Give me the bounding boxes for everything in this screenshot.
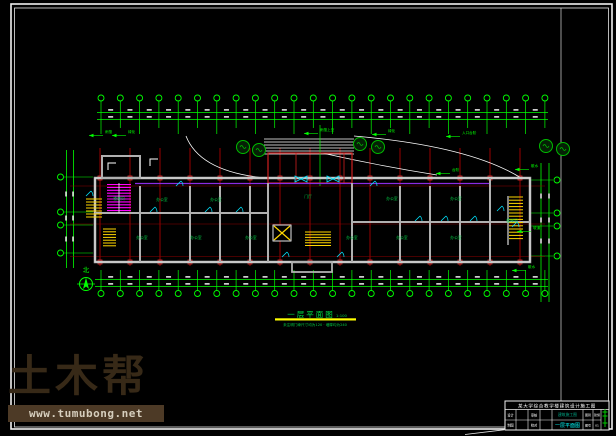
annotation-label: 散水 [528, 264, 536, 269]
grid-bubble [349, 95, 355, 101]
grid-bubble [233, 95, 239, 101]
door-swing [420, 216, 422, 221]
dim-text [378, 283, 383, 284]
dim-text [147, 116, 152, 117]
dim-text [263, 283, 268, 284]
grid-bubble [175, 95, 181, 101]
dim-text [72, 192, 73, 197]
grid-bubble [503, 95, 509, 101]
door-leaf [470, 216, 475, 221]
dim-text [359, 109, 364, 110]
door-leaf [86, 191, 91, 196]
room-label: 办公室 [346, 235, 358, 240]
room-label: 楼梯间 [506, 218, 518, 223]
dim-text [127, 283, 132, 284]
grid-bubble [554, 223, 560, 229]
grid-bubble [349, 291, 355, 297]
grid-bubble [233, 291, 239, 297]
door-swing [155, 207, 157, 212]
dim-text [224, 276, 229, 277]
dim-text [548, 218, 549, 223]
dim-text [301, 116, 306, 117]
grid-bubble [214, 95, 220, 101]
doors [86, 176, 519, 257]
drawing-note: 未注明门垛尺寸均为120 · 墙厚均为240 [283, 322, 348, 327]
watermark-url: www.tumubong.net [8, 405, 164, 422]
dim-text [108, 109, 113, 110]
north-arrow: 北 [77, 266, 95, 291]
dim-text [398, 109, 403, 110]
dim-text [263, 109, 268, 110]
door-leaf [415, 216, 420, 221]
door-swing [446, 216, 448, 221]
dim-text [65, 192, 66, 197]
dim-text [340, 283, 345, 284]
dim-text [147, 283, 152, 284]
titleblock-cell-draw: 制图 [507, 423, 513, 428]
dim-text [494, 283, 499, 284]
dim-text [127, 276, 132, 277]
dim-text [540, 194, 541, 199]
titleblock-no-value: 01 [595, 423, 599, 427]
room-label: 门厅 [304, 194, 312, 199]
dim-text [65, 216, 66, 221]
grid-bubble [523, 95, 529, 101]
dim-text [340, 109, 345, 110]
grid-bubble [175, 291, 181, 297]
dim-text [185, 276, 190, 277]
dim-text [533, 109, 538, 110]
north-label: 北 [83, 266, 90, 274]
dim-text [378, 116, 383, 117]
grid-bubble [330, 291, 336, 297]
dim-text [282, 116, 287, 117]
titleblock-cell-check: 审核 [531, 413, 538, 418]
title-block: 某大学综合教学楼建筑设计施工图 设计 审核 制图 校对 建筑施工图 一层平面图 … [505, 401, 609, 430]
door-leaf [205, 207, 210, 212]
grid-bubble [117, 291, 123, 297]
grid-bubble [426, 95, 432, 101]
dim-text [494, 276, 499, 277]
grid-bubble [272, 291, 278, 297]
grid-bubble [523, 291, 529, 297]
grid-bubble [291, 291, 297, 297]
grid-bubble [291, 95, 297, 101]
dim-text [378, 276, 383, 277]
grid-bubble [272, 95, 278, 101]
door-swing [502, 206, 504, 211]
grid-bubble [426, 291, 432, 297]
dim-text [320, 283, 325, 284]
annotation-arrow [89, 134, 94, 137]
title-underline [275, 318, 356, 320]
grid-bubble [484, 95, 490, 101]
annotation-label: 绿化 [128, 129, 136, 134]
annotation-arrow [112, 134, 117, 137]
grid-bubble [388, 291, 394, 297]
section-mark [108, 163, 116, 170]
dim-text [108, 116, 113, 117]
door-swing [475, 216, 477, 221]
dim-text [282, 109, 287, 110]
dim-text [475, 276, 480, 277]
room-label: 办公室 [190, 235, 202, 240]
dim-text [166, 109, 171, 110]
dim-text [456, 109, 461, 110]
annotation-label: 入口台阶 [462, 130, 477, 135]
left-dimension-chain [58, 150, 94, 268]
section-mark [150, 159, 158, 166]
dim-text [185, 116, 190, 117]
grid-bubble [368, 291, 374, 297]
dim-text [205, 276, 210, 277]
dim-text [436, 276, 441, 277]
dim-text [378, 109, 383, 110]
grid-bubble [195, 291, 201, 297]
titleblock-drawing-name: 一层平面图 [555, 423, 580, 429]
room-label: 办公室 [156, 197, 168, 202]
dim-text [359, 283, 364, 284]
grid-bubble [445, 95, 451, 101]
dim-text [263, 116, 268, 117]
dim-text [108, 283, 113, 284]
grid-bubble [98, 95, 104, 101]
dim-text [548, 194, 549, 199]
titleblock-cell-design: 设计 [507, 413, 514, 418]
dim-text [320, 276, 325, 277]
drawing-scale-text: 1:100 [336, 313, 348, 318]
dim-text [127, 116, 132, 117]
door-swing [241, 207, 243, 212]
dim-text [456, 276, 461, 277]
dim-text [65, 237, 66, 242]
dim-text [185, 109, 190, 110]
dim-text [540, 239, 541, 244]
dim-text [533, 116, 538, 117]
room-label: 办公室 [136, 235, 148, 240]
annotation-label: 雨篷上空 [320, 127, 335, 132]
room-label: 办公室 [210, 197, 222, 202]
dim-text [224, 283, 229, 284]
titleblock-project: 建筑施工图 [558, 412, 577, 417]
grid-bubble [98, 291, 104, 297]
dim-text [301, 109, 306, 110]
dim-text [533, 276, 538, 277]
grid-bubble [195, 95, 201, 101]
annotation-label: 坡道 [533, 225, 541, 230]
dim-text [456, 116, 461, 117]
grid-bubble [484, 291, 490, 297]
annotation-label: 台阶 [452, 167, 460, 172]
annotation-label: 雨篷 [105, 129, 113, 134]
door-leaf [150, 207, 155, 212]
grid-bubble [407, 95, 413, 101]
dim-text [320, 116, 325, 117]
grid-bubble [252, 95, 258, 101]
door-swing [210, 207, 212, 212]
dim-text [243, 283, 248, 284]
dim-text [147, 276, 152, 277]
grid-bubble [554, 210, 560, 216]
room-label: 办公室 [245, 235, 257, 240]
grid-bubble [368, 95, 374, 101]
grid-bubble [407, 291, 413, 297]
drawing-title-text: 一层平面图 [287, 310, 335, 319]
bottom-dimension-chain [95, 270, 548, 297]
dim-text [72, 237, 73, 242]
titleblock-header: 某大学综合教学楼建筑设计施工图 [518, 403, 596, 410]
grid-bubble [310, 291, 316, 297]
dim-text [166, 283, 171, 284]
titleblock-no-label: 图号 [585, 422, 591, 427]
drawing-title: 一层平面图 1:100 未注明门垛尺寸均为120 · 墙厚均为240 [275, 310, 356, 327]
door-swing [91, 191, 93, 196]
grid-bubble [252, 291, 258, 297]
titleblock-cell-proof: 校对 [531, 423, 538, 428]
annotation-arrow [372, 133, 377, 136]
dim-text [282, 276, 287, 277]
grid-bubble [117, 95, 123, 101]
dim-text [205, 109, 210, 110]
grid-bubble [554, 253, 560, 259]
dim-text [513, 283, 518, 284]
dim-text [72, 216, 73, 221]
dim-text [263, 276, 268, 277]
grid-bubble [214, 291, 220, 297]
grid-bubble [137, 291, 143, 297]
annotation-label: 散水 [531, 163, 539, 168]
grid-bubble [58, 250, 64, 256]
door-leaf [236, 207, 241, 212]
annotation-label: 绿化 [388, 128, 396, 133]
dim-text [513, 109, 518, 110]
dim-text [513, 116, 518, 117]
grid-bubble [58, 174, 64, 180]
dim-text [494, 116, 499, 117]
dim-text [417, 283, 422, 284]
dim-text [456, 283, 461, 284]
dim-text [243, 116, 248, 117]
dim-text [417, 276, 422, 277]
dim-text [475, 109, 480, 110]
dim-text [224, 116, 229, 117]
room-label: 办公室 [386, 196, 398, 201]
grid-bubble [503, 291, 509, 297]
watermark-logo: 土木帮 [8, 354, 149, 401]
grid-bubble [310, 95, 316, 101]
dim-text [417, 116, 422, 117]
titleblock-type-value: 建施 [594, 412, 600, 417]
grid-bubble [542, 95, 548, 101]
dim-text [548, 239, 549, 244]
dim-text [436, 283, 441, 284]
dim-text [282, 283, 287, 284]
grid-bubble [465, 95, 471, 101]
room-labels: 楼梯间办公室办公室门厅办公室办公室办公室办公室办公室办公室办公室办公室楼梯间 [113, 194, 518, 240]
dim-text [417, 109, 422, 110]
dim-text [359, 276, 364, 277]
dim-text [475, 283, 480, 284]
dim-text [340, 276, 345, 277]
dim-text [436, 116, 441, 117]
room-label: 办公室 [450, 235, 462, 240]
dim-text [166, 116, 171, 117]
dim-text [540, 218, 541, 223]
dim-text [340, 116, 345, 117]
dim-text [127, 109, 132, 110]
dim-text [301, 283, 306, 284]
column-grid [70, 148, 545, 266]
dim-text [533, 283, 538, 284]
dim-text [205, 116, 210, 117]
dim-text [494, 109, 499, 110]
grid-bubble [58, 209, 64, 215]
door-leaf [497, 206, 502, 211]
dim-text [359, 116, 364, 117]
grid-bubble [58, 222, 64, 228]
dim-text [243, 276, 248, 277]
grid-bubble [137, 95, 143, 101]
dim-text [436, 109, 441, 110]
door-leaf [441, 216, 446, 221]
titleblock-type-label: 图别 [585, 412, 591, 417]
dim-text [185, 283, 190, 284]
room-label: 办公室 [396, 235, 408, 240]
cad-viewer-canvas: 楼梯间办公室办公室门厅办公室办公室办公室办公室办公室办公室办公室办公室楼梯间 雨… [0, 0, 616, 436]
dim-text [475, 116, 480, 117]
grid-bubble [542, 291, 548, 297]
dim-text [224, 109, 229, 110]
room-label: 办公室 [450, 196, 462, 201]
dim-text [320, 109, 325, 110]
grid-bubble [554, 177, 560, 183]
north-arrow-needle [83, 278, 89, 290]
grid-bubble [156, 291, 162, 297]
grid-bubble [330, 95, 336, 101]
grid-bubble [156, 95, 162, 101]
dim-text [513, 276, 518, 277]
dim-text [301, 276, 306, 277]
grid-bubble [465, 291, 471, 297]
dim-text [243, 109, 248, 110]
grid-bubble [445, 291, 451, 297]
room-label: 楼梯间 [113, 196, 125, 201]
dim-text [398, 276, 403, 277]
annotation-arrow [512, 269, 517, 272]
frame-diagonal-line [465, 430, 504, 435]
dim-text [205, 283, 210, 284]
annotation-arrow [304, 132, 309, 135]
dim-text [166, 276, 171, 277]
dim-text [147, 109, 152, 110]
annotation-arrow [446, 135, 451, 138]
grid-bubble [388, 95, 394, 101]
annotation-arrow [515, 168, 520, 171]
dim-text [398, 283, 403, 284]
dim-text [108, 276, 113, 277]
dim-text [398, 116, 403, 117]
